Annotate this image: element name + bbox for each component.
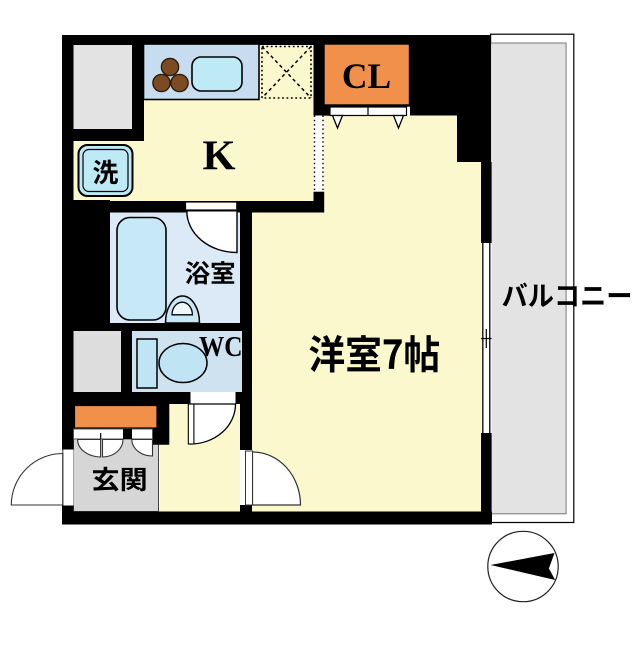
svg-text:CL: CL <box>342 56 391 96</box>
svg-text:WC: WC <box>199 332 243 363</box>
svg-text:K: K <box>202 133 235 180</box>
